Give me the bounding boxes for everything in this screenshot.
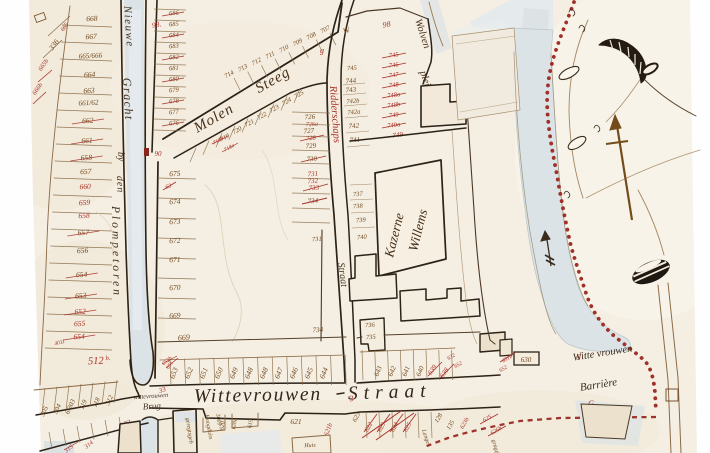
svg-text:672: 672: [169, 236, 181, 246]
svg-text:663: 663: [83, 86, 95, 96]
svg-text:737: 737: [353, 191, 364, 199]
svg-text:den: den: [114, 176, 126, 194]
svg-text:726: 726: [304, 113, 316, 122]
svg-text:b.: b.: [105, 355, 111, 362]
svg-text:671: 671: [169, 255, 181, 265]
svg-text:98.: 98.: [151, 19, 162, 30]
svg-text:675: 675: [169, 169, 181, 179]
svg-text:677: 677: [169, 109, 180, 117]
svg-text:742b: 742b: [346, 98, 360, 106]
svg-text:660: 660: [79, 182, 91, 192]
svg-text:729: 729: [305, 142, 317, 151]
svg-text:621: 621: [290, 417, 301, 426]
svg-text:670: 670: [169, 283, 181, 293]
svg-text:731: 731: [312, 236, 322, 244]
svg-text:736: 736: [365, 322, 376, 330]
svg-text:Wittevrouwen: Wittevrouwen: [194, 384, 322, 407]
svg-text:g: g: [320, 46, 324, 55]
svg-text:661/62: 661/62: [78, 98, 99, 107]
svg-text:667: 667: [85, 32, 98, 42]
svg-text:673: 673: [169, 217, 181, 227]
svg-text:740: 740: [357, 234, 368, 242]
svg-text:735: 735: [366, 334, 377, 342]
svg-text:745: 745: [347, 65, 358, 73]
svg-text:679: 679: [169, 87, 180, 95]
svg-text:Brug: Brug: [142, 400, 161, 411]
svg-text:90: 90: [155, 150, 163, 158]
svg-text:656: 656: [77, 246, 89, 256]
svg-text:669: 669: [169, 311, 181, 321]
svg-text:655: 655: [74, 319, 86, 329]
svg-text:658: 658: [78, 211, 90, 221]
svg-text:738: 738: [353, 203, 364, 211]
svg-text:Plompetoren: Plompetoren: [109, 205, 123, 298]
svg-text:683: 683: [169, 43, 180, 51]
svg-text:665/666: 665/666: [78, 51, 102, 60]
svg-text:734: 734: [312, 326, 323, 335]
svg-text:g: g: [577, 351, 581, 360]
svg-text:674: 674: [169, 197, 181, 207]
svg-text:668: 668: [86, 14, 98, 24]
svg-text:Gracht: Gracht: [120, 77, 136, 121]
svg-text:685: 685: [169, 21, 180, 29]
svg-text:742: 742: [348, 122, 360, 131]
svg-text:by: by: [115, 152, 126, 162]
svg-text:512: 512: [88, 356, 105, 368]
svg-text:659: 659: [79, 198, 91, 208]
svg-text:742a: 742a: [347, 109, 360, 117]
svg-text:681: 681: [169, 65, 179, 73]
svg-text:743: 743: [345, 86, 357, 95]
svg-text:657: 657: [80, 167, 93, 177]
svg-text:98: 98: [382, 19, 391, 29]
svg-text:Straat: Straat: [348, 381, 432, 405]
svg-text:630: 630: [521, 356, 532, 364]
svg-text:664: 664: [84, 70, 96, 80]
svg-text:Huis: Huis: [303, 443, 316, 450]
svg-text:739: 739: [356, 217, 367, 225]
